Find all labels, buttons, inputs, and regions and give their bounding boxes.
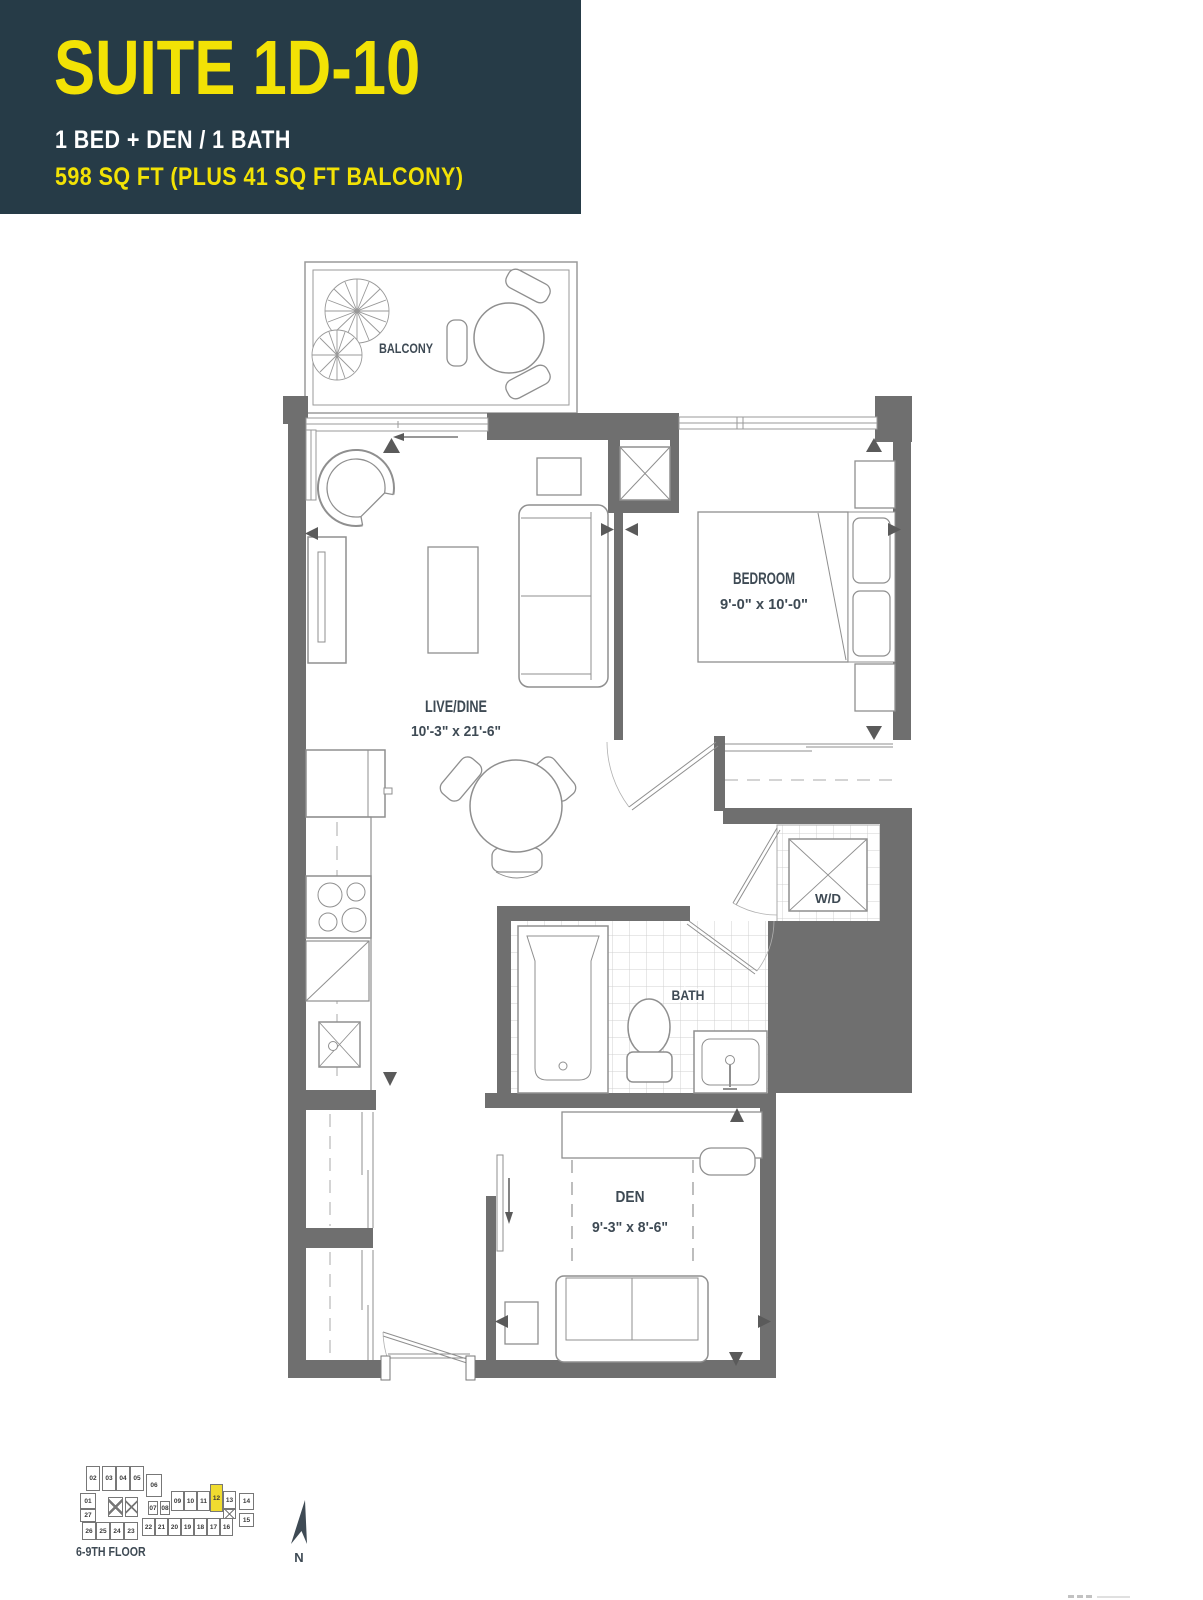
keyplan-unit-07: 07 (148, 1501, 158, 1515)
slide-direction-arrow-icon (393, 433, 458, 441)
den-side-table-icon (505, 1302, 538, 1344)
north-arrow-icon: N (291, 1500, 307, 1565)
shaft-icon (620, 447, 670, 500)
den-boundary-dashed (572, 1160, 693, 1268)
washer-dryer: W/D (733, 828, 867, 915)
bedroom-furniture (607, 461, 895, 810)
fridge-icon (306, 750, 392, 817)
bath-label: BATH (672, 988, 705, 1003)
cooktop-icon (306, 876, 371, 938)
keyplan-floor-label: 6-9TH FLOOR (76, 1545, 146, 1559)
print-artifact (1068, 1595, 1130, 1598)
dining-table-icon (437, 754, 579, 878)
arrow-down-icon (383, 1072, 397, 1086)
living-side-window (306, 430, 316, 500)
keyplan-unit-01: 01 (80, 1493, 96, 1509)
keyplan-unit-02: 02 (86, 1466, 100, 1491)
toilet-icon (627, 999, 672, 1082)
desk-chair-icon (700, 1148, 755, 1175)
arrow-down-icon (866, 726, 882, 740)
keyplan-core (125, 1497, 138, 1517)
kitchen (306, 750, 392, 1090)
balcony-slider-window (306, 418, 488, 431)
den-label: DEN (616, 1189, 645, 1206)
keyplan-core (108, 1497, 123, 1517)
bathtub-icon (518, 926, 608, 1093)
sink-icon (319, 1022, 360, 1067)
keyplan: 0203040506012707080910111213141526252423… (75, 1462, 271, 1554)
den-furniture (497, 1112, 762, 1362)
keyplan-unit-12: 12 (210, 1484, 223, 1512)
bedroom-label: BEDROOM (733, 570, 795, 588)
tv-console-icon (308, 537, 346, 663)
wd-label: W/D (815, 891, 841, 906)
keyplan-unit-18: 18 (194, 1518, 207, 1536)
den-sliding-door-icon (497, 1155, 513, 1251)
livedine-label: LIVE/DINE (425, 698, 487, 716)
floorplan-page: SUITE 1D-10 1 BED + DEN / 1 BATH 598 SQ … (0, 0, 1203, 1600)
sofa-icon (519, 505, 608, 687)
bedroom-dims: 9'-0" x 10'-0" (720, 597, 808, 613)
keyplan-unit-11: 11 (197, 1491, 210, 1511)
keyplan-unit-13: 13 (223, 1491, 236, 1509)
keyplan-unit-26: 26 (82, 1522, 96, 1540)
keyplan-unit-14: 14 (239, 1493, 254, 1510)
keyplan-unit-23: 23 (124, 1522, 138, 1540)
nightstand-icon (855, 664, 895, 711)
armchair-icon (318, 450, 394, 526)
entry-door-icon (381, 1332, 475, 1380)
north-label: N (294, 1550, 303, 1565)
arrow-left-icon (495, 1315, 508, 1328)
keyplan-unit-05: 05 (130, 1466, 144, 1491)
balcony-area: BALCONY (305, 262, 577, 413)
keyplan-unit-16: 16 (220, 1518, 233, 1536)
keyplan-unit-04: 04 (116, 1466, 130, 1491)
living-furniture (308, 450, 608, 687)
den-sofa-icon (556, 1276, 708, 1362)
keyplan-unit-09: 09 (171, 1491, 184, 1511)
keyplan-unit-15: 15 (239, 1513, 254, 1527)
keyplan-unit-08: 08 (160, 1501, 170, 1515)
dishwasher-icon (306, 941, 369, 1001)
nightstand-icon (855, 461, 895, 508)
keyplan-unit-21: 21 (155, 1518, 168, 1536)
arrow-up-icon (383, 438, 400, 453)
keyplan-unit-27: 27 (80, 1509, 96, 1522)
keyplan-unit-22: 22 (142, 1518, 155, 1536)
keyplan-unit-10: 10 (184, 1491, 197, 1511)
keyplan-units: 0203040506012707080910111213141526252423… (75, 1462, 271, 1554)
keyplan-unit-03: 03 (102, 1466, 116, 1491)
wd-door-icon (733, 828, 780, 915)
keyplan-unit-17: 17 (207, 1518, 220, 1536)
side-table-icon (537, 458, 581, 495)
keyplan-unit-25: 25 (96, 1522, 110, 1540)
balcony-label: BALCONY (379, 340, 434, 356)
den-dims: 9'-3" x 8'-6" (592, 1220, 668, 1236)
bath-sink-icon (694, 1031, 767, 1093)
bedroom-closet (725, 744, 893, 780)
keyplan-unit-06: 06 (146, 1474, 162, 1497)
livedine-dims: 10'-3" x 21'-6" (411, 724, 501, 740)
coffee-table-icon (428, 547, 478, 653)
keyplan-unit-24: 24 (110, 1522, 124, 1540)
floor-plan-drawing: BALCONY (0, 0, 1203, 1600)
arrow-left-icon (625, 523, 638, 536)
bed-icon (698, 512, 895, 662)
keyplan-unit-20: 20 (168, 1518, 181, 1536)
bedroom-door-icon (607, 742, 718, 810)
bedroom-window (679, 417, 877, 429)
keyplan-unit-19: 19 (181, 1518, 194, 1536)
